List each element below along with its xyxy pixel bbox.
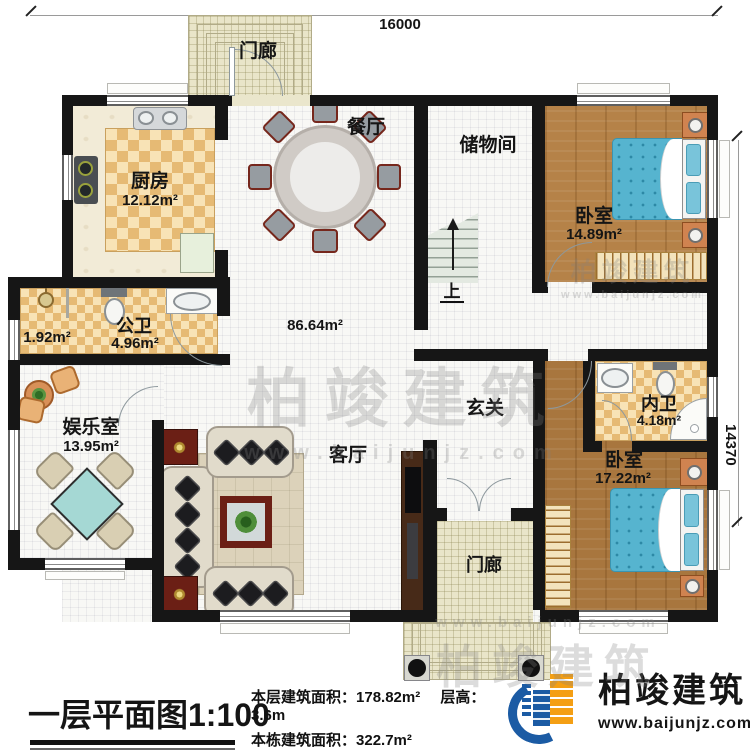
public-bath-label: 公卫 (108, 317, 160, 336)
sink-basin (162, 111, 178, 125)
wall (532, 282, 548, 293)
wall (437, 508, 447, 521)
shower-icon (38, 292, 54, 308)
logo-building-orange (550, 674, 573, 724)
fridge (180, 233, 214, 273)
kitchen-sink (133, 107, 187, 130)
sofa (206, 426, 294, 478)
wall (532, 95, 545, 293)
wall (217, 288, 230, 316)
public-bath-area-label: 4.96m² (104, 336, 166, 352)
foyer-label: 玄关 (457, 399, 513, 419)
wall (125, 558, 164, 570)
bed-sheet (660, 139, 682, 219)
bed (610, 488, 704, 572)
page-title: 一层平面图1:100 (28, 699, 260, 733)
open-area-label: 86.64m² (278, 318, 352, 334)
window-sill (45, 571, 125, 580)
nightstand (680, 458, 708, 486)
bath-divider (66, 288, 69, 318)
wall (8, 277, 230, 288)
window (707, 490, 718, 570)
stairs-up-label: 上 (440, 283, 464, 303)
dining-table-top (290, 142, 360, 212)
wall (215, 95, 228, 140)
bedroom1-label: 卧室 (566, 207, 622, 227)
toilet-tank (653, 362, 677, 370)
burner-icon (78, 183, 93, 198)
bed-pillow (686, 182, 701, 214)
dining-table (273, 125, 377, 229)
window (579, 610, 668, 622)
stairs-arrow (452, 228, 454, 270)
wall (588, 349, 718, 361)
wall (533, 361, 545, 610)
dimension-label-height: 14370 (720, 400, 738, 490)
window (8, 430, 20, 530)
dimension-line-right (738, 140, 739, 526)
stat-value: 322.7m² (356, 732, 412, 749)
dimension-line-top (30, 15, 718, 16)
dining-chair (312, 229, 338, 253)
window (62, 155, 73, 200)
window-sill (577, 83, 670, 94)
entertainment-label: 娱乐室 (50, 418, 132, 438)
wall (152, 610, 220, 622)
dimension-tick (731, 130, 742, 141)
dining-chair (377, 164, 401, 190)
bedroom1-area-label: 14.89m² (558, 227, 630, 243)
soundbar (407, 523, 418, 579)
porch-bottom-label: 门廊 (446, 556, 522, 575)
brand-name: 柏竣建筑 (598, 674, 748, 710)
toilet-tank (101, 288, 127, 297)
wall (592, 282, 718, 293)
sink-basin (138, 111, 154, 125)
storage-label: 储物间 (446, 136, 530, 156)
wall (540, 610, 579, 622)
porch-top-label: 门廊 (213, 42, 303, 62)
wall (511, 508, 533, 521)
wall (8, 288, 20, 320)
height-value: 3.6m (251, 707, 285, 724)
wall (8, 360, 20, 430)
bed (612, 138, 706, 220)
bed-pillow (686, 144, 701, 176)
coffee-table (220, 496, 272, 548)
dimension-label-width: 16000 (370, 17, 430, 33)
private-bath-area-label: 4.18m² (630, 413, 688, 428)
window (220, 610, 350, 622)
end-table (160, 576, 198, 612)
door-opening (232, 95, 310, 106)
wall (152, 420, 164, 622)
window-sill (719, 490, 730, 570)
floor-plan: 16000 14370 (0, 0, 750, 755)
end-table (160, 429, 198, 465)
window-sill (579, 623, 668, 634)
wall (414, 95, 428, 330)
window-sill (107, 83, 188, 94)
dimension-tick (731, 516, 742, 527)
bedroom2-label: 卧室 (596, 451, 652, 471)
window (707, 377, 718, 417)
wall (533, 349, 548, 361)
window-sill (719, 140, 730, 218)
burner-icon (78, 161, 93, 176)
shower-drain (690, 424, 699, 433)
stove (74, 156, 98, 204)
wall (707, 417, 718, 490)
brand-logo: 柏竣建筑 www.baijunjz.com (502, 660, 748, 752)
stairs-arrow-head (447, 218, 459, 230)
wall (62, 200, 73, 288)
tv-cabinet (401, 451, 424, 611)
window (45, 558, 125, 570)
bed-pillow (684, 533, 699, 566)
nightstand (682, 112, 708, 138)
wall (423, 440, 437, 622)
stat-label: 本层建筑面积： (251, 689, 356, 706)
stat-value: 178.82m² (356, 689, 420, 706)
wall (350, 610, 430, 622)
headboard (682, 139, 706, 219)
nightstand (680, 575, 704, 597)
kitchen-area-label: 12.12m² (112, 193, 188, 209)
wall (215, 250, 228, 288)
dining-label: 餐厅 (338, 118, 394, 138)
wall (8, 558, 45, 570)
wall (414, 349, 533, 361)
bed-sheet (658, 489, 680, 571)
stat-row: 本栋建筑面积：322.7m² (251, 729, 511, 750)
stat-row: 本层建筑面积：178.82m² 层高：3.6m (251, 686, 511, 724)
dining-chair (248, 164, 272, 190)
window (707, 140, 718, 218)
stats-block: 本层建筑面积：178.82m² 层高：3.6m 本栋建筑面积：322.7m² 占… (251, 686, 511, 755)
window (107, 95, 188, 106)
wall (707, 570, 718, 622)
title-underline (30, 740, 235, 745)
wall (62, 95, 107, 106)
wall (707, 95, 718, 140)
logo-building-blue (533, 690, 550, 726)
stat-label: 本栋建筑面积： (251, 732, 356, 749)
height-label: 层高： (440, 689, 485, 706)
wall (62, 106, 73, 155)
chair (16, 396, 46, 425)
living-label: 客厅 (320, 446, 376, 466)
brand-site: www.baijunjz.com (598, 716, 748, 733)
window (577, 95, 670, 106)
plant-icon (235, 511, 257, 533)
title-underline (30, 748, 235, 750)
entertainment-area-label: 13.95m² (52, 439, 130, 455)
headboard (680, 489, 704, 571)
shower-room-area-label: 1.92m² (17, 330, 77, 346)
tv-icon (405, 467, 421, 513)
basin-icon (173, 292, 211, 311)
bedroom2-area-label: 17.22m² (586, 471, 660, 487)
logo-mark-icon (506, 666, 594, 748)
window-sill (220, 623, 350, 634)
porch-column (404, 655, 430, 681)
bed-pillow (684, 494, 699, 527)
wardrobe (595, 252, 707, 280)
kitchen-label: 厨房 (118, 172, 182, 192)
basin-icon (601, 368, 629, 388)
nightstand (682, 222, 708, 248)
wardrobe (545, 505, 571, 608)
logo-window-dots (522, 682, 531, 716)
